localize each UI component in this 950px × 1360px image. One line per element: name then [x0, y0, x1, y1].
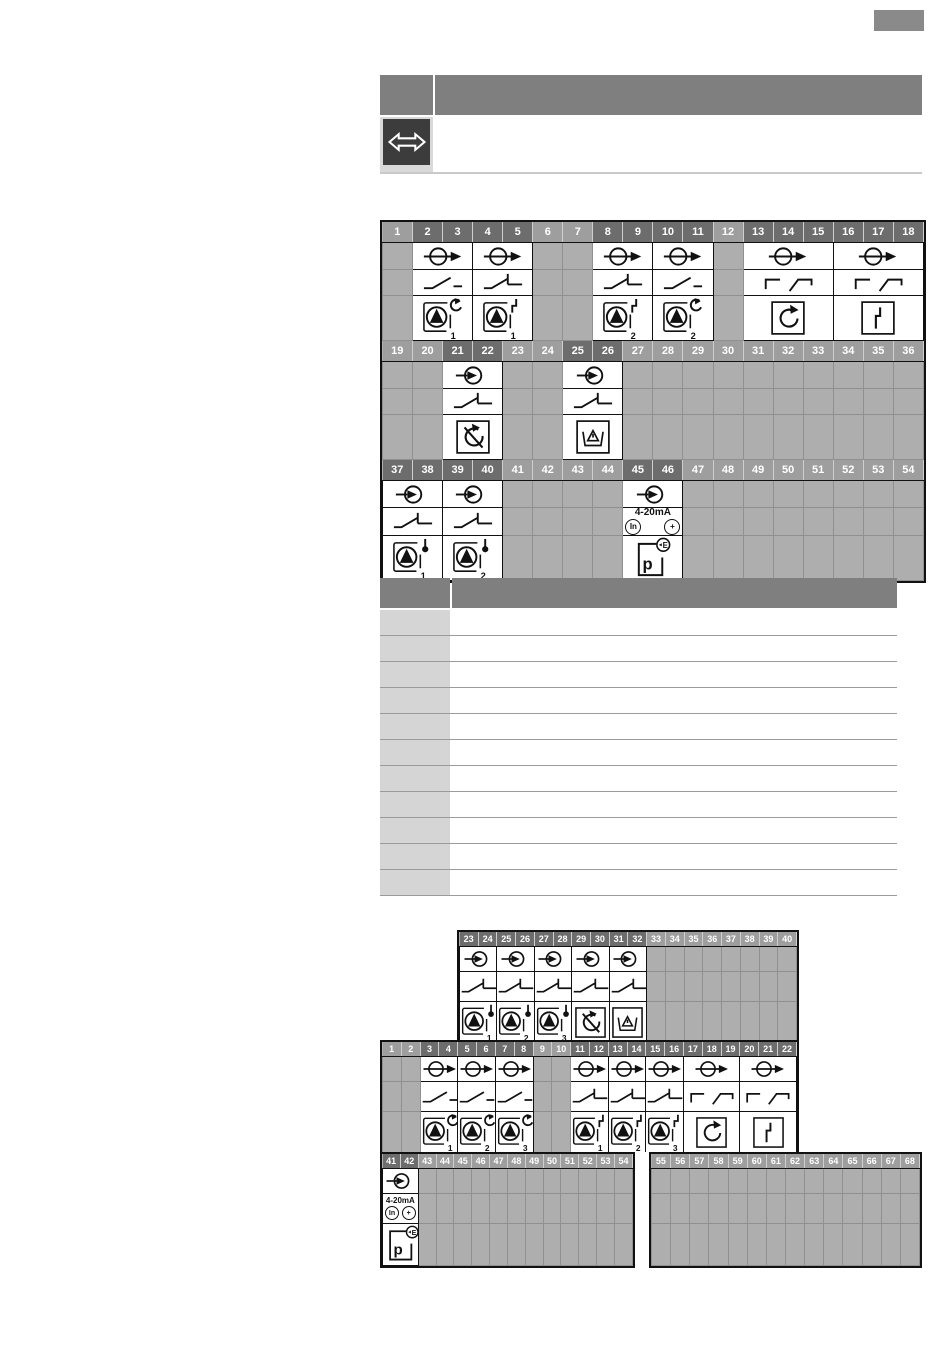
terminal-number: 30: [591, 932, 610, 947]
pump-temp-cell: 1: [460, 1002, 497, 1044]
terminal-number: 40: [778, 932, 797, 947]
terminal-number: 24: [533, 341, 563, 362]
terminal-number: 35: [863, 341, 893, 362]
svg-text:2: 2: [691, 331, 696, 340]
unused-terminal-cell: [743, 481, 773, 508]
unused-terminal-cell: [709, 1169, 728, 1194]
svg-text:p: p: [393, 1241, 402, 1258]
relay-output-icon: [593, 245, 652, 268]
unused-terminal-cell: [881, 1194, 900, 1224]
analog-4-20ma-cell: 4-20mA In +: [623, 508, 683, 536]
pump-fault-cell: 2: [593, 296, 653, 341]
unused-terminal-cell: [653, 415, 683, 460]
unused-terminal-cell: [561, 1224, 579, 1266]
terminal-number: 52: [833, 460, 863, 481]
svg-text:3: 3: [523, 1143, 528, 1152]
unused-terminal-cell: [713, 536, 743, 581]
unused-terminal-cell: [743, 508, 773, 536]
unused-terminal-cell: [563, 481, 593, 508]
unused-terminal-cell: [805, 1169, 824, 1194]
contact-no-cell: [653, 270, 713, 296]
terminal-number: 51: [561, 1154, 579, 1169]
contact-no-icon: [413, 272, 472, 293]
legend-row: [380, 740, 897, 766]
unused-terminal-cell: [561, 1194, 579, 1224]
contact-no-cell: [458, 1082, 496, 1112]
terminal-number: 39: [759, 932, 778, 947]
terminal-number: 1: [383, 222, 413, 243]
signal-input-cell: [383, 481, 443, 508]
relay-output-cell: [684, 1057, 740, 1082]
contact-changeover-cell: [833, 270, 923, 296]
terminal-number: 46: [472, 1154, 490, 1169]
unused-terminal-cell: [683, 362, 713, 389]
svg-text:1: 1: [451, 331, 456, 340]
pump-fault-icon: 1: [571, 1113, 608, 1152]
unused-terminal-cell: [759, 972, 778, 1002]
contact-changeover-cell: [740, 1082, 797, 1112]
terminal-number: 38: [413, 460, 443, 481]
terminal-number: 52: [579, 1154, 597, 1169]
terminal-number: 34: [833, 341, 863, 362]
legend-row: [380, 818, 897, 844]
terminal-number: 1: [383, 1042, 402, 1057]
unused-terminal-cell: [652, 1224, 671, 1266]
legend-terminal-cell: [380, 818, 450, 843]
unused-terminal-cell: [833, 389, 863, 415]
terminal-number: 40: [473, 460, 503, 481]
info-table-header: [380, 75, 922, 115]
unused-terminal-cell: [543, 1169, 561, 1194]
terminal-strip: 12345678910111213141516171819202122: [382, 1042, 797, 1154]
unused-terminal-cell: [683, 536, 713, 581]
unused-terminal-cell: [665, 947, 684, 972]
unused-terminal-cell: [383, 243, 413, 270]
terminal-number: 14: [773, 222, 803, 243]
unused-terminal-cell: [863, 508, 893, 536]
unused-terminal-cell: [671, 1169, 690, 1194]
unused-terminal-cell: [665, 972, 684, 1002]
signal-input-cell: [563, 362, 623, 389]
terminal-number: 57: [690, 1154, 709, 1169]
unused-terminal-cell: [833, 481, 863, 508]
analog-4-20ma-cell: 4-20mA In +: [383, 1194, 419, 1224]
no-rotation-cell: [443, 415, 503, 460]
unused-terminal-cell: [773, 389, 803, 415]
terminal-number: 36: [703, 932, 722, 947]
terminal-number: 11: [683, 222, 713, 243]
terminal-number: 44: [593, 460, 623, 481]
terminal-strip-gap: [635, 1152, 649, 1268]
terminal-number: 27: [623, 341, 653, 362]
relay-output-icon: [740, 1059, 796, 1079]
unused-terminal-cell: [743, 536, 773, 581]
terminal-number: 23: [460, 932, 479, 947]
terminal-number: 12: [713, 222, 743, 243]
unused-terminal-cell: [533, 1112, 552, 1154]
unused-terminal-cell: [722, 1002, 741, 1044]
contact-no-icon: [458, 1087, 495, 1106]
unused-terminal-cell: [472, 1169, 490, 1194]
contact-no-limit-cell: [572, 972, 609, 1002]
legend-row: [380, 636, 897, 662]
terminal-strip: 192021222324252627282930313233343536: [382, 341, 924, 460]
contact-no-limit-icon: [460, 977, 496, 996]
unused-terminal-cell: [472, 1224, 490, 1266]
unused-terminal-cell: [684, 947, 703, 972]
unused-terminal-cell: [507, 1169, 525, 1194]
unused-terminal-cell: [862, 1224, 881, 1266]
terminal-number: 16: [833, 222, 863, 243]
unused-terminal-cell: [805, 1194, 824, 1224]
no-rotation-cell: [572, 1002, 609, 1044]
unused-terminal-cell: [593, 536, 623, 581]
signal-input-cell: [497, 947, 534, 972]
relay-output-icon: [653, 245, 712, 268]
relay-output-cell: [413, 243, 473, 270]
unused-terminal-cell: [533, 536, 563, 581]
relay-output-cell: [608, 1057, 646, 1082]
terminal-number: 35: [684, 932, 703, 947]
terminal-number: 38: [740, 932, 759, 947]
terminal-number: 27: [534, 932, 553, 947]
unused-terminal-cell: [778, 947, 797, 972]
pump-temp-cell: 1: [383, 536, 443, 581]
terminal-number: 65: [843, 1154, 862, 1169]
legend-row: [380, 792, 897, 818]
unused-terminal-cell: [418, 1169, 436, 1194]
terminal-number: 5: [503, 222, 533, 243]
analog-plus-terminal: +: [664, 519, 680, 535]
contact-no-icon: [421, 1087, 458, 1106]
fault-icon: [740, 1116, 796, 1149]
terminal-number: 10: [552, 1042, 571, 1057]
unused-terminal-cell: [684, 972, 703, 1002]
legend-row: [380, 610, 897, 636]
signal-input-icon: [572, 949, 608, 969]
terminal-number: 60: [747, 1154, 766, 1169]
signal-input-cell: [623, 481, 683, 508]
unused-terminal-cell: [563, 536, 593, 581]
relay-output-cell: [473, 243, 533, 270]
terminal-number: 16: [665, 1042, 684, 1057]
contact-no-limit-icon: [646, 1087, 683, 1106]
terminal-number: 33: [647, 932, 666, 947]
signal-input-cell: [534, 947, 571, 972]
legend-terminal-cell: [380, 766, 450, 791]
terminal-number: 53: [597, 1154, 615, 1169]
legend-description-cell: [450, 870, 897, 895]
legend-table: [380, 578, 897, 896]
unused-terminal-cell: [533, 270, 563, 296]
unused-terminal-cell: [785, 1194, 804, 1224]
unused-terminal-cell: [490, 1169, 508, 1194]
legend-terminal-cell: [380, 844, 450, 869]
contact-no-limit-cell: [646, 1082, 684, 1112]
pump-fault-cell: 1: [571, 1112, 609, 1154]
terminal-number: 31: [743, 341, 773, 362]
contact-no-limit-icon: [383, 511, 442, 532]
terminal-number: 6: [533, 222, 563, 243]
relay-output-cell: [593, 243, 653, 270]
unused-terminal-cell: [413, 362, 443, 389]
signal-input-icon: [535, 949, 571, 969]
terminal-number: 2: [413, 222, 443, 243]
unused-terminal-cell: [824, 1224, 843, 1266]
terminal-number: 63: [805, 1154, 824, 1169]
terminal-number: 56: [671, 1154, 690, 1169]
terminal-number: 31: [609, 932, 628, 947]
unused-terminal-cell: [383, 389, 413, 415]
unused-terminal-cell: [472, 1194, 490, 1224]
legend-row: [380, 844, 897, 870]
unused-terminal-cell: [803, 481, 833, 508]
unused-terminal-cell: [728, 1169, 747, 1194]
terminal-number: 26: [593, 341, 623, 362]
unused-terminal-cell: [383, 1112, 402, 1154]
terminal-number: 44: [436, 1154, 454, 1169]
contact-no-limit-cell: [571, 1082, 609, 1112]
info-table-row: [380, 117, 922, 174]
unused-terminal-cell: [623, 362, 653, 389]
contact-no-cell: [495, 1082, 533, 1112]
unused-terminal-cell: [785, 1169, 804, 1194]
signal-input-icon: [383, 1171, 418, 1191]
analog-in-terminal: In: [625, 519, 641, 535]
legend-terminal-cell: [380, 714, 450, 739]
terminal-diagram-middle-strip: 12345678910111213141516171819202122: [380, 1040, 799, 1156]
terminal-number: 7: [563, 222, 593, 243]
terminal-number: 8: [514, 1042, 533, 1057]
terminal-number: 10: [653, 222, 683, 243]
signal-input-cell: [572, 947, 609, 972]
pump-run-icon: 3: [496, 1113, 533, 1152]
signal-input-icon: [383, 483, 442, 506]
signal-input-cell: [443, 362, 503, 389]
contact-no-limit-icon: [593, 272, 652, 293]
terminal-number: 12: [589, 1042, 608, 1057]
signal-input-icon: [443, 364, 502, 387]
pump-run-cell: 2: [458, 1112, 496, 1154]
terminal-number: 66: [862, 1154, 881, 1169]
unused-terminal-cell: [863, 415, 893, 460]
unused-terminal-cell: [597, 1194, 615, 1224]
pump-temp-cell: 2: [443, 536, 503, 581]
unused-terminal-cell: [533, 508, 563, 536]
unused-terminal-cell: [533, 243, 563, 270]
info-row-symbol-cell: [380, 117, 433, 172]
unused-terminal-cell: [533, 296, 563, 341]
relay-output-icon: [744, 245, 833, 268]
unused-terminal-cell: [683, 389, 713, 415]
relay-output-icon: [684, 1059, 739, 1079]
terminal-number: 5: [458, 1042, 477, 1057]
terminal-diagram-lower-left: 4142434445464748495051525354 4-20mA In +…: [380, 1152, 635, 1268]
terminal-strip: 373839404142434445464748495051525354 4-2…: [382, 460, 924, 581]
unused-terminal-cell: [893, 508, 923, 536]
unused-terminal-cell: [778, 972, 797, 1002]
unused-terminal-cell: [383, 1057, 402, 1082]
unused-terminal-cell: [533, 362, 563, 389]
terminal-number: 29: [683, 341, 713, 362]
terminal-number: 48: [507, 1154, 525, 1169]
rotation-icon: [744, 300, 833, 336]
unused-terminal-cell: [525, 1224, 543, 1266]
terminal-number: 37: [722, 932, 741, 947]
unused-terminal-cell: [893, 415, 923, 460]
unused-terminal-cell: [383, 1082, 402, 1112]
terminal-number: 55: [652, 1154, 671, 1169]
pump-run-cell: 1: [420, 1112, 458, 1154]
unused-terminal-cell: [843, 1224, 862, 1266]
unused-terminal-cell: [436, 1194, 454, 1224]
unused-terminal-cell: [579, 1224, 597, 1266]
terminal-number: 43: [563, 460, 593, 481]
terminal-number: 25: [497, 932, 516, 947]
terminal-number: 15: [803, 222, 833, 243]
pump-run-cell: 1: [413, 296, 473, 341]
terminal-number: 59: [728, 1154, 747, 1169]
terminal-number: 18: [893, 222, 923, 243]
unused-terminal-cell: [418, 1194, 436, 1224]
contact-changeover-icon: [684, 1087, 739, 1106]
unused-terminal-cell: [833, 415, 863, 460]
unused-terminal-cell: [833, 536, 863, 581]
unused-terminal-cell: [843, 1169, 862, 1194]
unused-terminal-cell: [803, 536, 833, 581]
legend-description-cell: [450, 792, 897, 817]
terminal-number: 48: [713, 460, 743, 481]
contact-no-limit-icon: [572, 977, 608, 996]
analog-4-20ma-icon: 4-20mA In +: [623, 508, 682, 535]
pressure-sensor-cell: p E: [383, 1224, 419, 1266]
unused-terminal-cell: [593, 508, 623, 536]
terminal-number: 54: [614, 1154, 632, 1169]
signal-input-icon: [563, 364, 622, 387]
unused-terminal-cell: [597, 1169, 615, 1194]
contact-changeover-cell: [684, 1082, 740, 1112]
unused-terminal-cell: [900, 1224, 919, 1266]
unused-terminal-cell: [533, 481, 563, 508]
terminal-number: 41: [383, 1154, 401, 1169]
unused-terminal-cell: [383, 362, 413, 389]
unused-terminal-cell: [728, 1224, 747, 1266]
legend-terminal-cell: [380, 636, 450, 661]
bidirectional-arrow-icon: [383, 119, 430, 165]
unused-terminal-cell: [436, 1169, 454, 1194]
unused-terminal-cell: [722, 947, 741, 972]
pump-run-icon: 2: [458, 1113, 495, 1152]
terminal-number: 13: [608, 1042, 627, 1057]
unused-terminal-cell: [543, 1224, 561, 1266]
terminal-strip: 123456789101112131415161718 1: [382, 222, 924, 341]
unused-terminal-cell: [773, 415, 803, 460]
unused-terminal-cell: [579, 1194, 597, 1224]
contact-no-limit-cell: [443, 508, 503, 536]
relay-output-cell: [571, 1057, 609, 1082]
unused-terminal-cell: [893, 362, 923, 389]
terminal-number: 54: [893, 460, 923, 481]
unused-terminal-cell: [766, 1224, 785, 1266]
terminal-number: 61: [766, 1154, 785, 1169]
unused-terminal-cell: [490, 1224, 508, 1266]
unused-terminal-cell: [713, 415, 743, 460]
unused-terminal-cell: [503, 362, 533, 389]
unused-terminal-cell: [401, 1112, 420, 1154]
pump-fault-cell: 3: [646, 1112, 684, 1154]
info-row-text-cell: [433, 117, 922, 172]
unused-terminal-cell: [653, 389, 683, 415]
info-header-symbol-cell: [380, 75, 433, 115]
terminal-number: 22: [778, 1042, 797, 1057]
unused-terminal-cell: [690, 1194, 709, 1224]
analog-plus-terminal: +: [402, 1206, 416, 1220]
unused-terminal-cell: [503, 536, 533, 581]
unused-terminal-cell: [671, 1224, 690, 1266]
relay-output-icon: [609, 1059, 646, 1079]
terminal-number: 14: [627, 1042, 646, 1057]
unused-terminal-cell: [671, 1194, 690, 1224]
contact-no-limit-cell: [460, 972, 497, 1002]
terminal-number: 43: [418, 1154, 436, 1169]
legend-description-cell: [450, 636, 897, 661]
unused-terminal-cell: [507, 1194, 525, 1224]
terminal-number: 3: [420, 1042, 439, 1057]
unused-terminal-cell: [597, 1224, 615, 1266]
terminal-number: 17: [684, 1042, 703, 1057]
unused-terminal-cell: [759, 947, 778, 972]
unused-terminal-cell: [543, 1194, 561, 1224]
contact-no-limit-cell: [497, 972, 534, 1002]
svg-text:p: p: [643, 554, 653, 573]
unused-terminal-cell: [418, 1224, 436, 1266]
contact-no-icon: [653, 272, 712, 293]
pump-run-cell: 3: [495, 1112, 533, 1154]
terminal-number: 67: [881, 1154, 900, 1169]
pressure-sensor-icon: p E: [383, 1225, 418, 1264]
svg-text:2: 2: [631, 331, 636, 340]
terminal-number: 13: [743, 222, 773, 243]
unused-terminal-cell: [824, 1169, 843, 1194]
unused-terminal-cell: [653, 362, 683, 389]
terminal-strip: 5556575859606162636465666768: [651, 1154, 920, 1266]
unused-terminal-cell: [533, 1082, 552, 1112]
unused-terminal-cell: [383, 415, 413, 460]
unused-terminal-cell: [740, 972, 759, 1002]
signal-input-icon: [623, 483, 682, 506]
legend-description-cell: [450, 610, 897, 635]
pump-fault-cell: 2: [608, 1112, 646, 1154]
terminal-number: 20: [740, 1042, 759, 1057]
legend-row: [380, 714, 897, 740]
terminal-number: 33: [803, 341, 833, 362]
terminal-number: 23: [503, 341, 533, 362]
terminal-number: 3: [443, 222, 473, 243]
unused-terminal-cell: [525, 1169, 543, 1194]
unused-terminal-cell: [703, 1002, 722, 1044]
terminal-number: 41: [503, 460, 533, 481]
relay-output-icon: [496, 1059, 533, 1079]
unused-terminal-cell: [503, 389, 533, 415]
unused-terminal-cell: [647, 947, 666, 972]
unused-terminal-cell: [614, 1194, 632, 1224]
terminal-number: 42: [533, 460, 563, 481]
terminal-number: 47: [683, 460, 713, 481]
page-number-badge: [874, 10, 924, 31]
unused-terminal-cell: [713, 481, 743, 508]
contact-no-limit-cell: [534, 972, 571, 1002]
legend-terminal-cell: [380, 662, 450, 687]
